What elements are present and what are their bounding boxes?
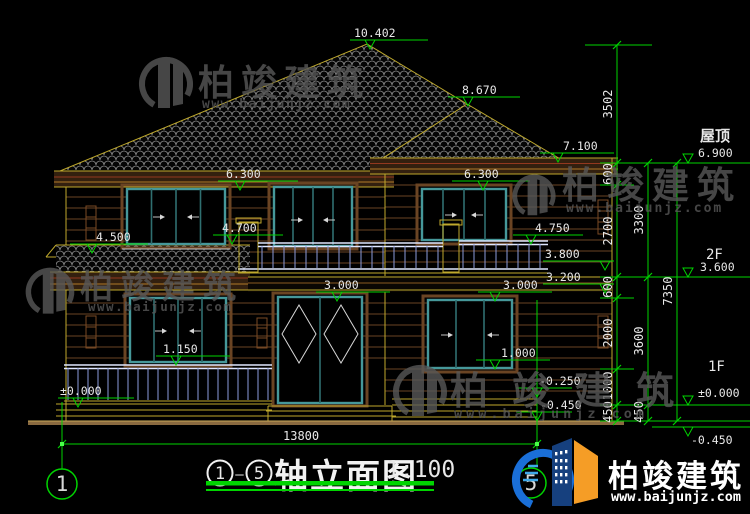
vertical-dim-value: 600 — [601, 276, 615, 298]
window-2f-left — [122, 185, 230, 249]
floor-label: 屋顶 — [700, 127, 730, 145]
balcony-door-2f — [269, 183, 357, 249]
watermark: 柏竣建筑www.baijunjz.com — [20, 262, 244, 321]
elevation-value: ±0.000 — [60, 384, 102, 398]
logo-url: www.baijunjz.com — [611, 489, 741, 505]
vertical-dim-value: 2700 — [601, 217, 615, 246]
window-1f-right — [423, 296, 517, 372]
title-underline — [206, 489, 434, 491]
level-marker: 3.800 — [543, 247, 614, 270]
floor-label: 2F — [706, 247, 723, 263]
elevation-value: 3.800 — [545, 247, 580, 261]
elevation-value: 10.402 — [354, 26, 396, 40]
floor-label: 13800 — [283, 429, 319, 443]
axis-number: 1 — [56, 472, 69, 496]
vertical-dim-value: 2000 — [601, 319, 615, 348]
elevation-value: 6.900 — [698, 146, 733, 160]
level-marker: 10.402 — [350, 26, 428, 49]
vertical-dim-value: 3502 — [601, 90, 615, 119]
axis-bubble: 1 — [47, 469, 77, 499]
watermark-url: www.baijunjz.com — [88, 299, 232, 314]
elevation-value: 1.000 — [501, 346, 536, 360]
watermark-building-icon — [133, 51, 199, 117]
elevation-value: 4.750 — [535, 221, 570, 235]
entry-door-1f — [273, 293, 367, 406]
floor-label: 1F — [708, 359, 725, 375]
elevation-value: ±0.000 — [698, 386, 740, 400]
watermark-building-icon — [508, 170, 560, 222]
title-underline — [206, 481, 434, 486]
level-marker: 6.900 — [640, 146, 750, 163]
logo-tower-blue — [552, 438, 572, 506]
cad-canvas: 10.4028.6707.1006.3006.3004.5004.7004.75… — [0, 0, 750, 514]
elevation-value: 7.100 — [563, 139, 598, 153]
watermark-url: www.baijunjz.com — [454, 406, 648, 422]
drawing-title: 1—5轴立面图1:100 — [206, 457, 455, 497]
brand-logo — [507, 438, 598, 514]
elevation-value: 4.500 — [96, 230, 131, 244]
elevation-value: 6.300 — [226, 167, 261, 181]
elevation-value: -0.450 — [691, 433, 733, 447]
elevation-value: 3.000 — [324, 278, 359, 292]
level-triangle-icon — [683, 268, 693, 277]
elevation-value: 1.150 — [163, 342, 198, 356]
watermark-url: www.baijunjz.com — [202, 97, 351, 112]
level-marker: 3.600 — [640, 260, 750, 277]
logo-tower-orange — [574, 440, 598, 504]
elevation-value: 3.000 — [503, 278, 538, 292]
window-2f-right — [417, 185, 511, 244]
title-scale: 1:100 — [386, 457, 455, 483]
level-triangle-icon — [683, 154, 693, 163]
elevation-value: 6.300 — [464, 167, 499, 181]
elevation-value: 8.670 — [462, 83, 497, 97]
elevation-value: 4.700 — [222, 221, 257, 235]
vertical-dim-value: 3600 — [632, 327, 646, 356]
watermark: 柏竣建筑www.baijunjz.com — [387, 359, 698, 425]
title-axis-separator: — — [235, 467, 244, 483]
watermark-url: www.baijunjz.com — [566, 201, 723, 216]
axis-number: 5 — [525, 471, 538, 495]
vertical-dim-value: 7350 — [661, 277, 675, 306]
level-marker: -0.450 — [652, 427, 750, 447]
elevation-drawing: 10.4028.6707.1006.3006.3004.5004.7004.75… — [0, 0, 750, 514]
elevation-value: 3.200 — [546, 270, 581, 284]
brand-logo-text: 柏竣建筑www.baijunjz.com — [608, 459, 744, 505]
